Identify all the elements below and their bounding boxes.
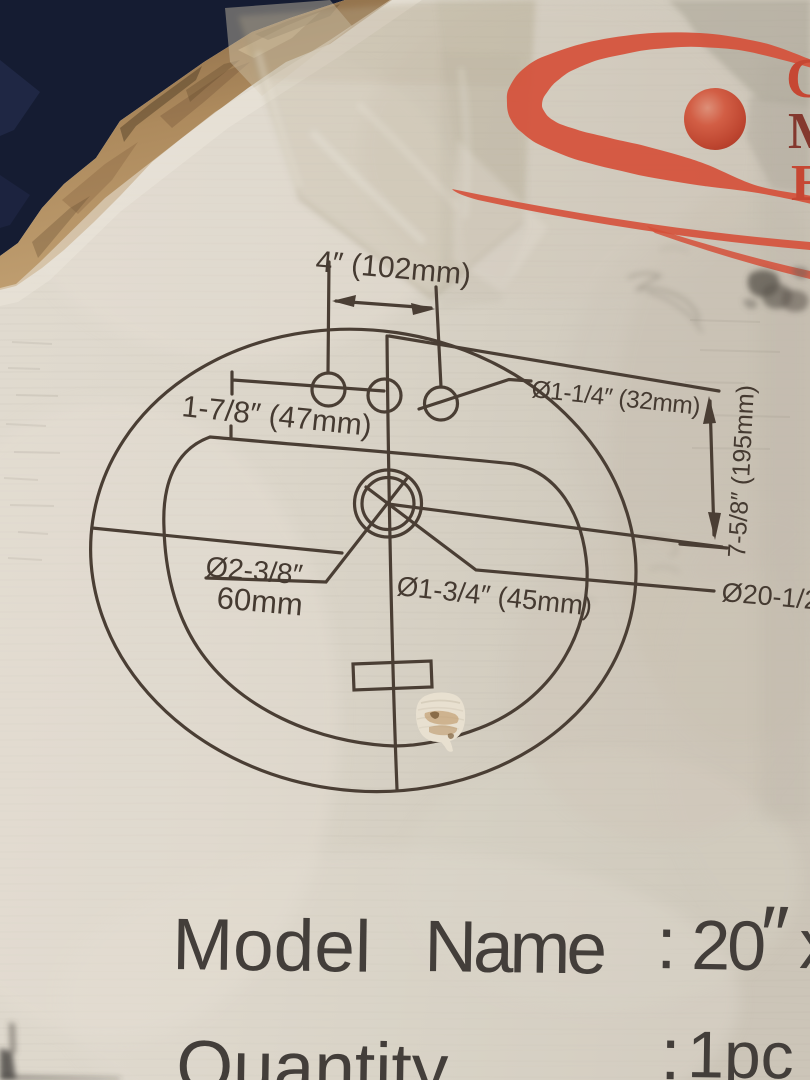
svg-text:1pc: 1pc — [687, 1017, 794, 1080]
svg-text:M: M — [788, 103, 810, 160]
svg-text:Model: Model — [172, 904, 372, 988]
svg-text:Quantity: Quantity — [176, 1026, 449, 1080]
svg-text:″: ″ — [760, 890, 790, 981]
svg-text:Name: Name — [424, 906, 605, 990]
svg-text:C: C — [786, 48, 810, 110]
svg-text:x: x — [799, 905, 810, 983]
svg-text::: : — [660, 1014, 681, 1080]
svg-text:20: 20 — [691, 906, 765, 985]
svg-text:E: E — [791, 155, 810, 212]
svg-text:60mm: 60mm — [215, 580, 304, 622]
svg-text::: : — [656, 903, 677, 984]
